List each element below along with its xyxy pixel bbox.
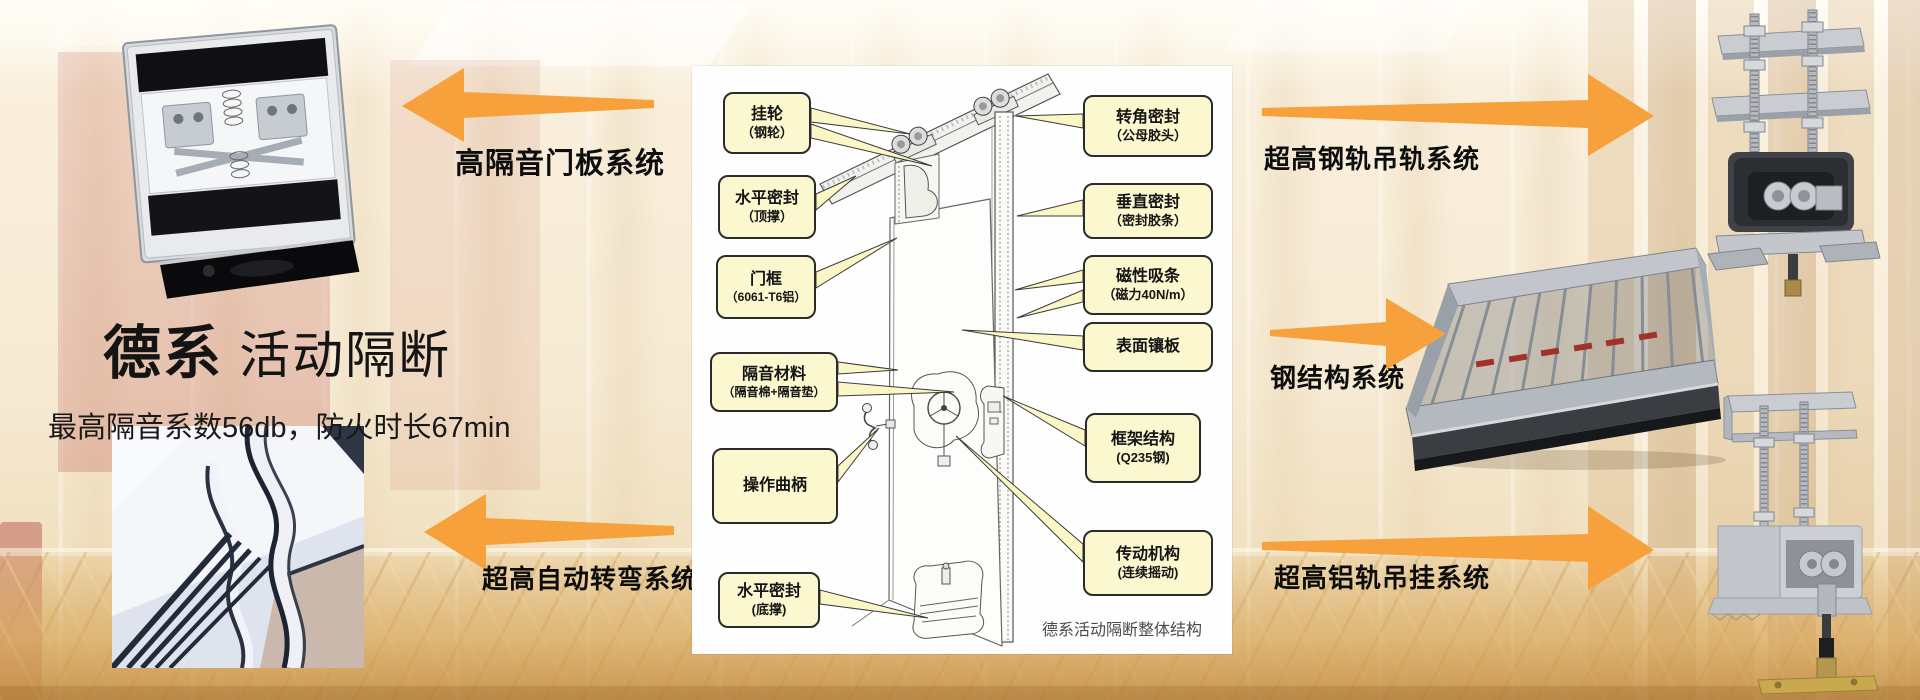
label-auto-turning-system: 超高自动转弯系统 xyxy=(482,559,698,596)
stile-bracket-cutaway xyxy=(981,386,1004,458)
photo-alu-rail-hanger xyxy=(1690,386,1890,698)
background-floor-shadow xyxy=(0,686,1920,700)
threaded-rods xyxy=(1754,402,1814,526)
callout-horizontal-seal-top: 水平密封 （顶撑） xyxy=(718,175,816,239)
label-door-panel-system: 高隔音门板系统 xyxy=(455,140,665,182)
photo-steel-rail-hanger xyxy=(1690,2,1888,298)
title-block: 德系 活动隔断 最高隔音系数56db，防火时长67min xyxy=(48,306,511,446)
callout-frame-structure: 框架结构 (Q235钢) xyxy=(1085,413,1201,483)
wheel-housing xyxy=(1728,152,1854,232)
diagram-panel: 挂轮 （钢轮） 水平密封 （顶撑） 门框 （6061-T6铝） 隔音材料 （隔音… xyxy=(692,66,1232,654)
callout-door-frame: 门框 （6061-T6铝） xyxy=(716,255,816,319)
callout-vertical-seal: 垂直密封 （密封胶条） xyxy=(1083,183,1213,239)
drop-rod xyxy=(1822,614,1831,642)
brand-name: 德系 xyxy=(103,321,223,386)
arrow-left-top xyxy=(398,62,658,144)
ceiling-light-streak xyxy=(408,4,751,66)
top-rail xyxy=(820,74,1060,204)
page-title: 德系 活动隔断 xyxy=(48,306,511,390)
brass-fitting xyxy=(1785,280,1801,296)
top-channel xyxy=(1724,392,1857,442)
door-panel-tray xyxy=(123,25,361,300)
callout-magnetic-strip: 磁性吸条 （磁力40N/m） xyxy=(1083,255,1213,315)
ceiling-light-streak xyxy=(1222,0,1478,52)
callout-corner-seal: 转角密封 （公母胶头） xyxy=(1083,95,1213,157)
label-steel-rail-system: 超高钢轨吊轨系统 xyxy=(1264,139,1480,176)
label-alu-rail-system: 超高铝轨吊挂系统 xyxy=(1274,558,1490,595)
arrow-left-top-shape xyxy=(402,68,654,142)
floor-plate xyxy=(1758,676,1878,694)
product-name: 活动隔断 xyxy=(223,327,451,384)
bottom-seal-cutaway xyxy=(913,561,984,638)
callout-surface-panel: 表面镶板 xyxy=(1083,322,1213,372)
label-steel-structure-system: 钢结构系统 xyxy=(1270,358,1405,395)
hanger-plates xyxy=(1712,28,1871,122)
poster: 德系 活动隔断 最高隔音系数56db，防火时长67min 高隔音门板系统 超高自… xyxy=(0,0,1920,700)
diagram-caption: 德系活动隔断整体结构 xyxy=(1032,616,1212,640)
callout-hanging-wheel: 挂轮 （钢轮） xyxy=(723,92,811,154)
alu-extrusion xyxy=(1708,526,1872,620)
threaded-rods xyxy=(1744,10,1823,154)
photo-door-panel-mechanism xyxy=(106,6,370,300)
callout-drive-mechanism: 传动机构 (连续摇动) xyxy=(1083,530,1213,596)
photo-curved-track xyxy=(112,426,364,668)
callout-horizontal-seal-bottom: 水平密封 (底撑) xyxy=(718,572,820,628)
callout-acoustic-material: 隔音材料 （隔音棉+隔音垫） xyxy=(710,352,838,412)
callout-operating-crank: 操作曲柄 xyxy=(712,448,838,524)
title-subtitle: 最高隔音系数56db，防火时长67min xyxy=(48,404,511,446)
